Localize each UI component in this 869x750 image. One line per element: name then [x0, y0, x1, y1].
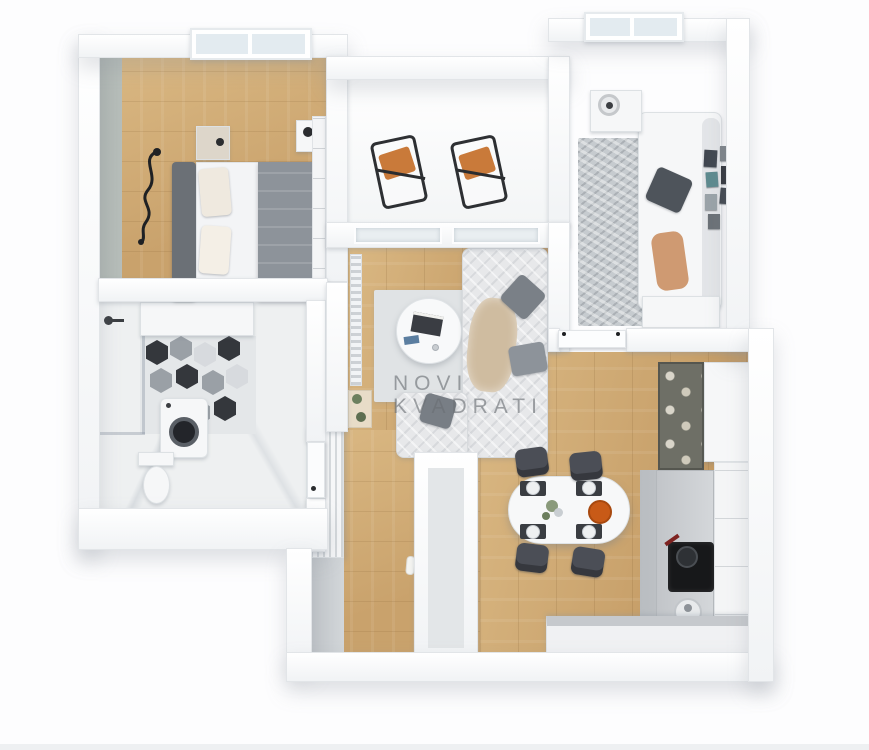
right-room-window-pane	[590, 18, 630, 36]
coffee-cup-icon	[432, 344, 439, 351]
watermark: NOVI KVADRATI	[393, 372, 543, 418]
bedroom-wardrobe	[312, 116, 326, 300]
french-door-glass	[354, 226, 442, 244]
door-hinge-icon	[562, 332, 566, 336]
pan-icon	[676, 546, 698, 568]
wall-bedroom-right	[326, 56, 348, 282]
washing-machine-door	[169, 417, 199, 447]
watermark-line2: KVADRATI	[393, 395, 543, 418]
bedroom-window-pane	[196, 34, 248, 54]
dining-chair	[514, 446, 550, 478]
wall-bed-bath-divider	[98, 278, 328, 302]
nightstand	[196, 126, 230, 160]
gallery-frame	[705, 194, 717, 210]
watermark-line1: NOVI	[393, 372, 543, 395]
plate-icon	[582, 481, 596, 495]
wall-bathroom-right-upper	[306, 300, 326, 442]
dining-chair	[569, 450, 604, 481]
alarm-clock-icon	[216, 138, 224, 146]
bathroom-vanity	[140, 302, 254, 336]
plate-icon	[582, 525, 596, 539]
bottle-rack-panel	[658, 362, 704, 470]
gallery-frame	[704, 150, 718, 168]
washing-machine-knob	[166, 403, 171, 408]
wall-balcony-right	[548, 56, 570, 226]
bedroom-window-pane	[252, 34, 305, 54]
dining-chair	[514, 542, 549, 574]
wall-living-left	[326, 282, 348, 432]
bottom-strip	[0, 744, 869, 750]
bed-pillow	[198, 167, 232, 217]
daybed-back-cushion	[702, 118, 720, 304]
gallery-frame	[708, 214, 720, 229]
plate-icon	[526, 525, 540, 539]
right-room-window-pane	[634, 18, 677, 36]
radiator	[350, 254, 362, 386]
wall-right-room-right	[726, 18, 750, 352]
floor-lamp-base	[606, 102, 613, 109]
door-hinge-icon	[616, 332, 620, 336]
plant-icon	[352, 394, 362, 404]
wall-bathroom-bottom	[78, 508, 328, 550]
french-door-glass	[452, 226, 540, 244]
wall-balcony-top	[326, 56, 570, 80]
wall-bottom	[286, 652, 774, 682]
bed-pillow	[198, 225, 231, 275]
wall-hallway-left	[286, 548, 312, 668]
wall-right-room-bottom	[626, 328, 750, 352]
plant-icon	[356, 412, 366, 422]
toilet-tank	[138, 452, 174, 466]
fruit-bowl-orange	[588, 500, 612, 524]
floorplan-render: NOVI KVADRATI	[0, 0, 869, 750]
bathroom-door	[307, 442, 325, 498]
kitchen-upper-cabinet	[704, 362, 750, 462]
right-room-dresser	[642, 296, 720, 328]
wall-kitchen-right	[748, 328, 774, 682]
plate-icon	[526, 481, 540, 495]
toilet-bowl	[143, 466, 170, 504]
cable-wall-lamp-icon	[126, 146, 170, 246]
dining-chair	[570, 546, 606, 579]
partition-inset-panel	[428, 468, 464, 648]
flower-centerpiece	[554, 508, 563, 517]
bedroom-accent-wall	[98, 58, 122, 282]
shower-glass	[100, 432, 145, 435]
door-handle-icon	[311, 486, 316, 491]
flower-centerpiece	[542, 512, 550, 520]
wall-outer-left	[78, 34, 100, 550]
sink-faucet-icon	[684, 604, 692, 612]
gallery-frame	[705, 172, 718, 188]
shower-arm-icon	[110, 319, 124, 322]
